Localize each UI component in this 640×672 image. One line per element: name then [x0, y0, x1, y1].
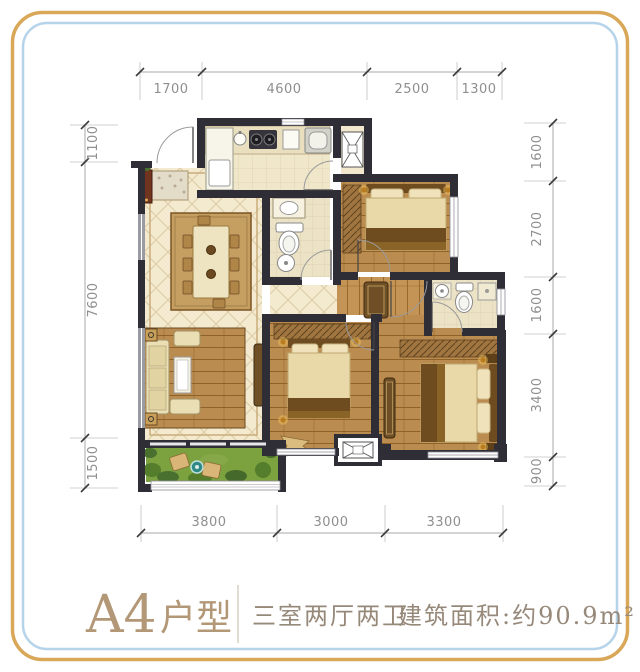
kitchen-board [283, 130, 299, 149]
chair [183, 258, 192, 271]
pillow [477, 403, 490, 433]
dim-label: 1100 [86, 125, 101, 160]
dim-label: 2700 [530, 211, 545, 246]
window [282, 119, 304, 125]
floorplan [131, 118, 507, 492]
wall-lamp-icon [281, 418, 286, 423]
wall-lamp-icon [362, 188, 367, 193]
window [138, 328, 145, 428]
dim-label: 2500 [394, 82, 429, 97]
dim-label: 900 [530, 458, 545, 484]
window [138, 214, 145, 260]
floorplan-image: 1700 4600 2500 1300 3800 3000 3300 1100 … [0, 0, 640, 672]
layout-text: 三室两厅两卫 [252, 602, 408, 630]
chair [230, 235, 239, 248]
dining-table [193, 226, 229, 298]
dim-label: 1600 [530, 287, 545, 322]
wall-lamp-icon [281, 340, 286, 345]
window [450, 197, 458, 257]
chair [213, 299, 225, 308]
wall-lamp-icon [446, 188, 451, 193]
chair [183, 235, 192, 248]
wall-lamp-icon [481, 358, 486, 363]
window [277, 449, 335, 455]
side-table [145, 329, 157, 341]
armchair [174, 331, 200, 346]
dimension-left: 1100 7600 1500 [70, 121, 118, 492]
chair [230, 258, 239, 271]
wall-lamp-icon [481, 445, 486, 450]
dim-label: 1500 [86, 445, 101, 480]
pillow [477, 369, 490, 399]
window [497, 289, 505, 315]
dim-label: 1700 [153, 82, 188, 97]
toilet-tank [456, 283, 473, 291]
service-platform [342, 132, 363, 167]
chair [183, 281, 192, 294]
wardrobe [274, 324, 371, 339]
dim-label: 3000 [313, 515, 348, 530]
footer-caption: A4 户型 三室两厅两卫 建筑面积:约90.9m² [85, 585, 636, 645]
armchair [170, 399, 200, 414]
balcony-rail [151, 481, 280, 490]
ac-platform [336, 436, 380, 464]
window [428, 452, 498, 458]
entry-door [157, 127, 193, 163]
wardrobe [400, 340, 498, 357]
floorplan-page: 1700 4600 2500 1300 3800 3000 3300 1100 … [0, 0, 640, 672]
bedroom1 [343, 184, 453, 253]
dim-label: 3300 [426, 515, 461, 530]
balcony-lounge-chair [202, 461, 222, 478]
dim-label: 7600 [86, 282, 101, 317]
area-text: 建筑面积:约90.9m² [398, 602, 636, 630]
dim-label: 1600 [530, 134, 545, 169]
dimension-top: 1700 4600 2500 1300 [136, 62, 506, 100]
dimension-bottom: 3800 3000 3300 [137, 505, 507, 542]
chair [230, 281, 239, 294]
kitchen-prep-sink [209, 160, 230, 186]
unit-suffix-text: 户型 [160, 598, 232, 639]
sink-icon [280, 202, 298, 215]
balcony-slider [145, 440, 278, 448]
dim-label: 3400 [530, 377, 545, 412]
side-table [145, 413, 157, 425]
unit-code-text: A4 [85, 585, 157, 645]
dim-label: 3800 [191, 515, 226, 530]
kitchen-sink [234, 133, 246, 145]
chair [198, 216, 210, 225]
dim-label: 1300 [461, 82, 496, 97]
hallway-floor [270, 285, 337, 314]
dining-area [171, 213, 251, 310]
dim-label: 4600 [266, 82, 301, 97]
dimension-right: 1600 2700 1600 3400 900 [524, 119, 566, 490]
dresser [384, 378, 395, 438]
